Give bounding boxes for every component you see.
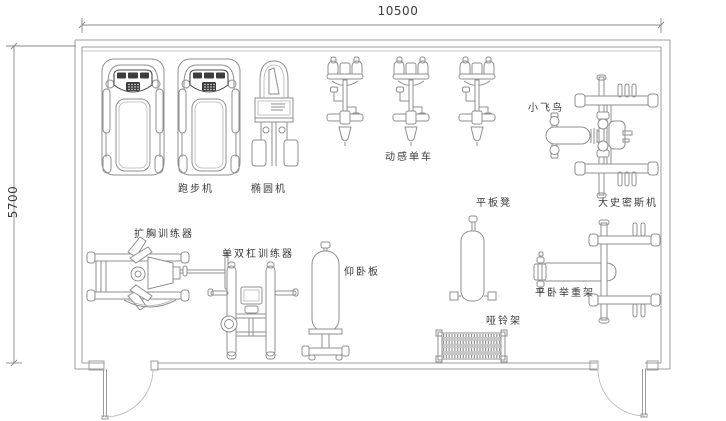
dimension-width-label: 10500 xyxy=(378,5,419,17)
label-fly-bird: 小飞鸟 xyxy=(528,104,564,114)
door-left xyxy=(102,369,153,419)
spin-bike-3 xyxy=(459,57,495,146)
door-right xyxy=(598,369,647,417)
fly-bird-machine xyxy=(546,113,603,158)
label-bench-press-rack: 平卧举重架 xyxy=(535,289,595,299)
elliptical-machine xyxy=(252,61,298,166)
label-treadmill: 跑步机 xyxy=(178,185,214,195)
label-dip-station: 单双杠训练器 xyxy=(222,250,294,260)
label-smith-machine: 大史密斯机 xyxy=(598,199,658,209)
floor-plan-drawing xyxy=(0,0,726,421)
dip-station xyxy=(208,262,298,359)
label-chest-expander: 扩胸训练器 xyxy=(134,230,194,240)
treadmill-2 xyxy=(178,59,240,175)
dumbbell-rack xyxy=(436,330,507,362)
label-situp-board: 仰卧板 xyxy=(344,268,380,278)
dimension-width-line xyxy=(79,18,664,33)
treadmill-1 xyxy=(102,59,164,175)
spin-bike-2 xyxy=(393,57,429,146)
label-spin-bike: 动感单车 xyxy=(385,153,433,163)
situp-board xyxy=(302,242,349,360)
floor-plan-canvas: 10500 5700 跑步机 椭圆机 动感单车 小飞鸟 大史密斯机 扩胸训练器 … xyxy=(0,0,726,421)
dimension-height-label: 5700 xyxy=(7,186,19,219)
chest-expander-machine xyxy=(87,237,228,310)
label-flat-bench: 平板凳 xyxy=(476,199,512,209)
flat-bench xyxy=(450,216,496,301)
label-dumbbell-rack: 哑铃架 xyxy=(486,317,522,327)
bench-press-rack xyxy=(534,220,660,323)
spin-bike-1 xyxy=(327,57,363,146)
label-elliptical: 椭圆机 xyxy=(251,185,287,195)
